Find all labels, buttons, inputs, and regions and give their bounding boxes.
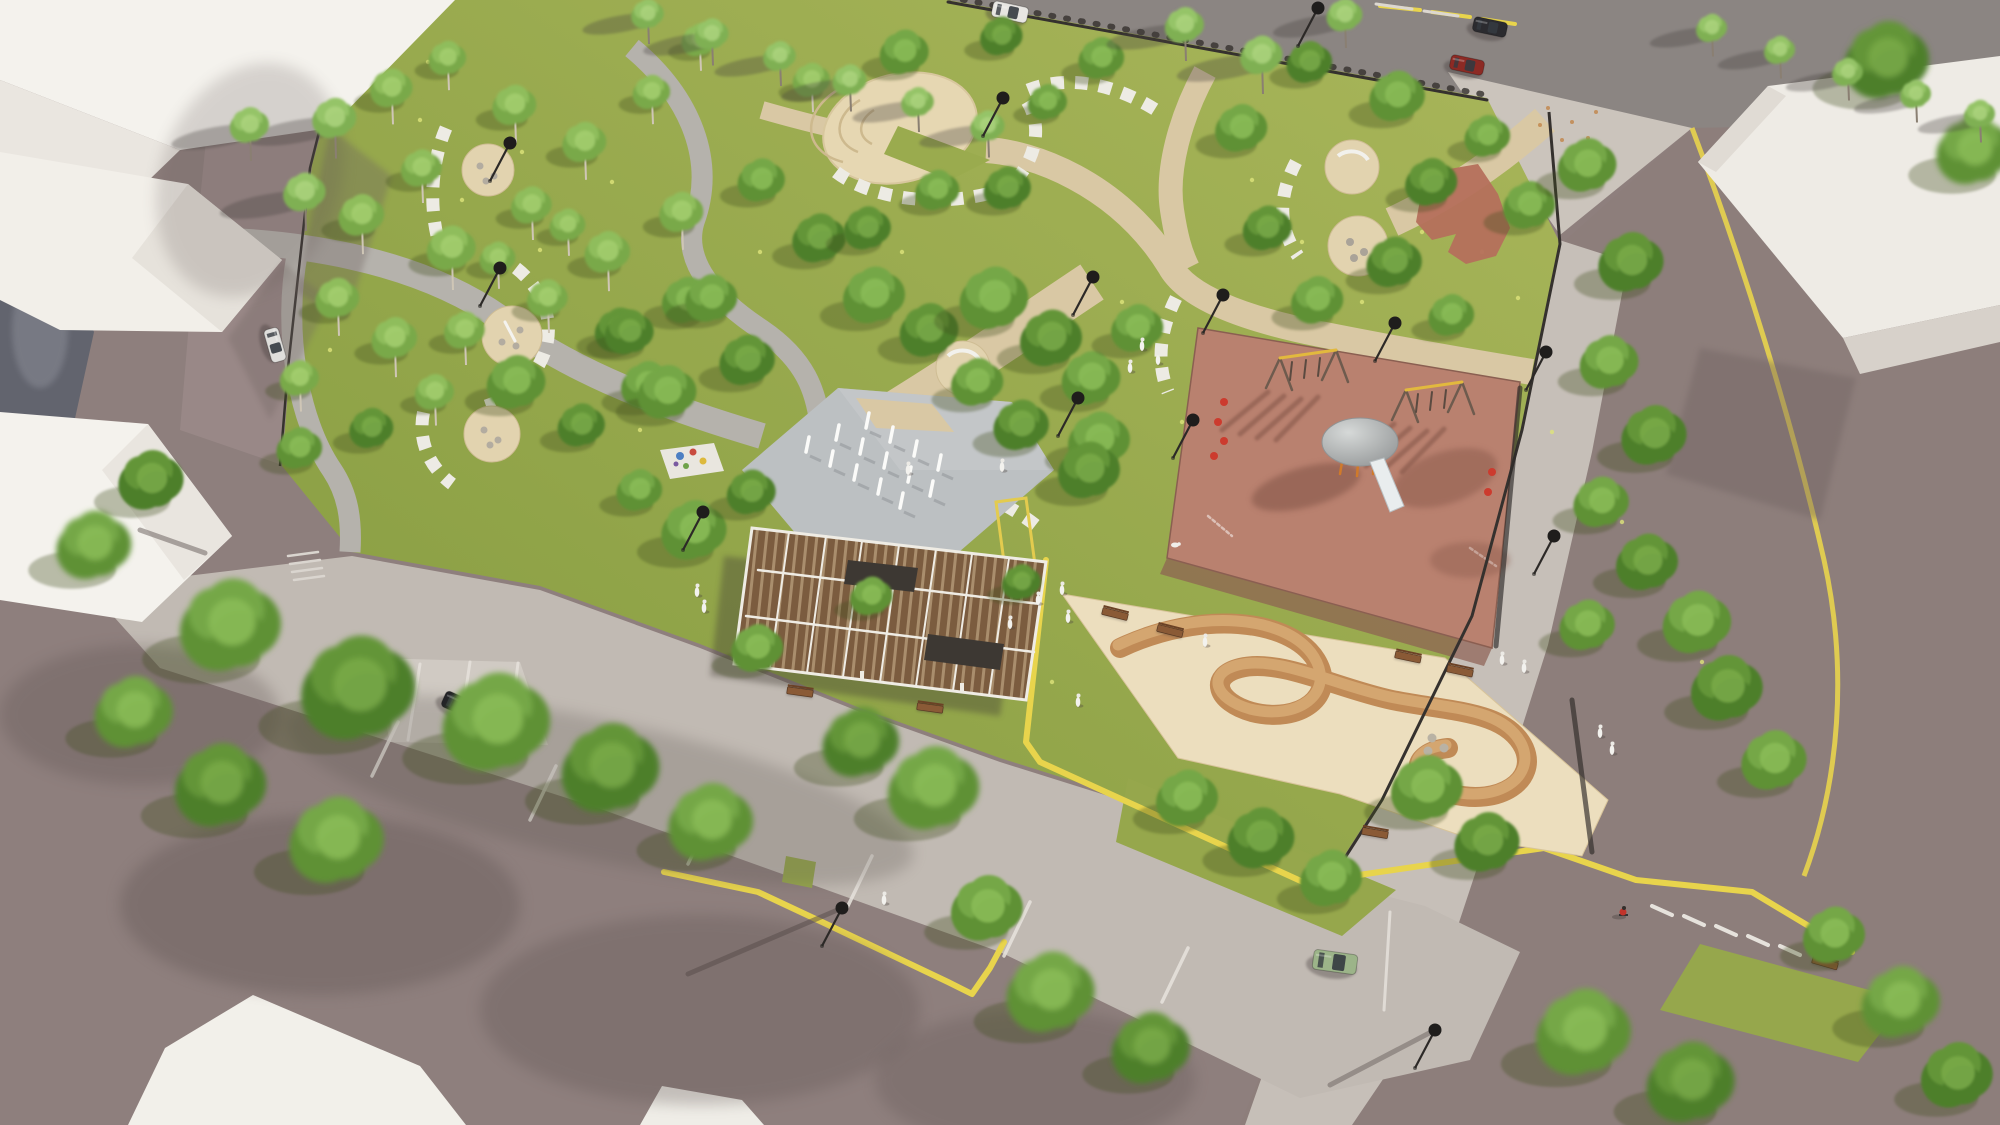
lamp-base	[1532, 572, 1536, 576]
circle-rocks	[1346, 238, 1354, 246]
lawn-flowers	[1620, 520, 1624, 524]
lamp-base	[478, 304, 482, 308]
canopy-highlight	[1958, 130, 1993, 165]
person-head	[1129, 360, 1133, 364]
canopy-highlight	[1126, 314, 1150, 338]
pergola-column	[960, 683, 964, 693]
canopy-highlight	[426, 382, 444, 400]
fallen-leaves	[1594, 110, 1598, 114]
canopy-highlight	[700, 284, 724, 308]
lamp-base	[681, 548, 685, 552]
person-head	[1523, 660, 1527, 664]
render-canvas	[0, 0, 2000, 1125]
lamp-head	[1312, 2, 1325, 15]
lamp-head	[1429, 1024, 1442, 1037]
canopy-highlight	[1575, 610, 1601, 636]
lamp-head	[1389, 317, 1402, 330]
person-head	[1077, 694, 1081, 698]
canopy-highlight	[1385, 81, 1411, 107]
canopy-highlight	[979, 280, 1011, 312]
canopy-highlight	[1705, 20, 1719, 34]
person-head	[907, 462, 911, 466]
canopy-highlight	[1306, 286, 1330, 310]
person-body	[1036, 595, 1041, 605]
fallen-leaves	[1546, 106, 1550, 110]
canopy-highlight	[505, 93, 526, 114]
canopy-highlight	[971, 889, 1004, 922]
canopy-highlight	[382, 77, 402, 97]
sand-rocks	[1424, 747, 1433, 756]
canopy-highlight	[384, 326, 405, 347]
canopy-highlight	[117, 691, 153, 727]
canopy-highlight	[571, 413, 593, 435]
canopy-highlight	[894, 39, 917, 62]
lawn-flowers	[900, 250, 904, 254]
fallen-leaves	[1560, 138, 1564, 142]
circle-furnishings	[481, 427, 488, 434]
canopy-highlight	[1909, 86, 1923, 100]
spring-rider	[1214, 418, 1222, 426]
canopy-highlight	[1473, 825, 1503, 855]
circle-rocks	[1360, 248, 1368, 256]
lamp-head	[1217, 289, 1230, 302]
lamp-base	[1373, 359, 1377, 363]
canopy-highlight	[741, 479, 764, 502]
circle-furnishings	[499, 339, 506, 346]
canopy-highlight	[1617, 245, 1647, 275]
lamp-base	[1413, 1066, 1417, 1070]
canopy-highlight	[746, 634, 770, 658]
person-body	[1000, 462, 1005, 472]
lawn-flowers	[638, 428, 642, 432]
lamp-head	[1072, 392, 1085, 405]
canopy-highlight	[441, 235, 464, 258]
canopy-highlight	[456, 319, 475, 338]
lamp-base	[1296, 44, 1300, 48]
lamp-head	[836, 902, 849, 915]
person-head	[1157, 352, 1161, 356]
person-body	[1076, 697, 1081, 707]
canopy-highlight	[1382, 247, 1408, 273]
person-body	[1140, 341, 1145, 351]
dog-head	[1177, 542, 1181, 546]
rider-head	[1622, 906, 1626, 910]
lamp-head	[494, 262, 507, 275]
park-aerial-render	[0, 0, 2000, 1125]
canopy-highlight	[654, 377, 681, 404]
circle-rocks	[1350, 254, 1358, 262]
canopy-highlight	[672, 200, 693, 221]
person-head	[1061, 582, 1065, 586]
canopy-highlight	[589, 742, 635, 788]
canopy-highlight	[1640, 418, 1670, 448]
canopy-highlight	[857, 216, 879, 238]
canopy-highlight	[910, 93, 925, 108]
car-windshield	[1332, 954, 1346, 972]
lamp-head	[504, 137, 517, 150]
canopy-highlight	[629, 478, 650, 499]
canopy-highlight	[503, 367, 530, 394]
canopy-highlight	[1246, 820, 1277, 851]
canopy-highlight	[560, 216, 577, 233]
lawn-flowers	[1700, 660, 1704, 664]
canopy-highlight	[1634, 546, 1663, 575]
person-body	[1500, 655, 1505, 665]
person-body	[882, 895, 887, 905]
canopy-highlight	[1411, 769, 1444, 802]
canopy-highlight	[1009, 410, 1035, 436]
canopy-highlight	[201, 761, 244, 804]
canopy-highlight	[1589, 487, 1615, 513]
canopy-highlight	[208, 598, 255, 645]
canopy-highlight	[316, 815, 360, 859]
canopy-highlight	[351, 203, 372, 224]
canopy-highlight	[1337, 6, 1354, 23]
lawn-flowers	[1120, 300, 1124, 304]
mat-red-dot	[690, 449, 697, 456]
lamp-head	[1187, 414, 1200, 427]
canopy-highlight	[1441, 303, 1462, 324]
spring-rider	[1220, 398, 1228, 406]
lawn-flowers	[1516, 296, 1520, 300]
canopy-highlight	[523, 194, 542, 213]
canopy-highlight	[992, 25, 1012, 45]
canopy-highlight	[1596, 347, 1623, 374]
canopy-highlight	[291, 368, 309, 386]
person-head	[1611, 742, 1615, 746]
lawn-flowers	[758, 250, 762, 254]
seating-circle	[1325, 140, 1379, 194]
canopy-highlight	[137, 463, 167, 493]
spring-rider	[1210, 452, 1218, 460]
lamp-base	[1071, 313, 1075, 317]
lawn-flowers	[1300, 240, 1304, 244]
mat-blue-dot	[676, 452, 684, 460]
canopy-highlight	[1299, 50, 1320, 71]
spring-rider	[1220, 437, 1228, 445]
canopy-highlight	[333, 658, 386, 711]
circle-furnishings	[513, 343, 520, 350]
person-body	[1128, 363, 1133, 373]
lawn-flowers	[1050, 680, 1054, 684]
circle-furnishings	[477, 163, 484, 170]
canopy-highlight	[328, 286, 349, 307]
canopy-highlight	[619, 319, 642, 342]
canopy-highlight	[473, 694, 523, 744]
canopy-highlight	[1252, 44, 1272, 64]
canopy-highlight	[1420, 168, 1444, 192]
canopy-highlight	[844, 722, 880, 758]
lamp-head	[1087, 271, 1100, 284]
canopy-highlight	[1841, 64, 1855, 78]
person-head	[883, 892, 887, 896]
person-head	[696, 584, 700, 588]
lawn-flowers	[1250, 178, 1254, 182]
person-body	[1203, 637, 1208, 647]
canopy-highlight	[914, 764, 957, 807]
canopy-highlight	[1031, 969, 1072, 1010]
canopy-highlight	[643, 82, 660, 99]
circle-furnishings	[517, 327, 524, 334]
tree-shade-on-street	[480, 915, 920, 1105]
canopy-highlight	[966, 368, 990, 392]
canopy-highlight	[1477, 124, 1498, 145]
lamp-base	[981, 134, 985, 138]
fallen-leaves	[1538, 123, 1542, 127]
sand-rocks	[1428, 734, 1437, 743]
lawn-flowers	[1550, 430, 1554, 434]
canopy-highlight	[1318, 862, 1347, 891]
canopy-highlight	[704, 25, 720, 41]
climber-dome	[1322, 418, 1398, 466]
canopy-highlight	[772, 47, 787, 62]
canopy-highlight	[1076, 454, 1105, 483]
canopy-highlight	[1574, 150, 1601, 177]
canopy-highlight	[325, 106, 346, 127]
canopy-highlight	[1760, 743, 1790, 773]
canopy-highlight	[1773, 42, 1787, 56]
lamp-base	[820, 944, 824, 948]
canopy-highlight	[1868, 38, 1908, 78]
canopy-highlight	[362, 416, 383, 437]
person-body	[1060, 585, 1065, 595]
canopy-highlight	[413, 157, 432, 176]
canopy-highlight	[640, 5, 655, 20]
person-head	[1501, 652, 1505, 656]
canopy-highlight	[241, 115, 259, 133]
person-body	[702, 603, 707, 613]
canopy-highlight	[735, 345, 761, 371]
lamp-head	[1548, 530, 1561, 543]
person-body	[1610, 745, 1615, 755]
canopy-highlight	[1563, 1007, 1607, 1051]
person-body	[1598, 728, 1603, 738]
canopy-highlight	[289, 436, 310, 457]
sand-rocks	[1440, 744, 1449, 753]
person-head	[1037, 592, 1041, 596]
canopy-highlight	[1013, 572, 1031, 590]
mat-purple-dot	[674, 462, 679, 467]
canopy-highlight	[539, 287, 558, 306]
canopy-highlight	[1884, 981, 1920, 1017]
mat-yellow-dot	[700, 458, 707, 465]
canopy-highlight	[751, 168, 773, 190]
lawn-flowers	[460, 198, 464, 202]
person-body	[695, 587, 700, 597]
canopy-highlight	[575, 130, 596, 151]
canopy-highlight	[1039, 92, 1057, 110]
person-body	[906, 465, 911, 475]
lamp-base	[1056, 434, 1060, 438]
person-body	[1008, 619, 1013, 629]
lawn-flowers	[610, 180, 614, 184]
canopy-highlight	[1174, 782, 1203, 811]
mat-green-dot	[683, 463, 689, 469]
canopy-highlight	[1176, 15, 1194, 33]
canopy-highlight	[1671, 1059, 1712, 1100]
canopy-highlight	[1711, 669, 1744, 702]
canopy-highlight	[1518, 191, 1542, 215]
person-body	[1066, 613, 1071, 623]
lawn-flowers	[1180, 420, 1184, 424]
canopy-highlight	[861, 279, 890, 308]
canopy-highlight	[862, 585, 882, 605]
canopy-highlight	[597, 240, 618, 261]
person-head	[703, 600, 707, 604]
canopy-highlight	[997, 176, 1019, 198]
lawn-flowers	[418, 118, 422, 122]
canopy-highlight	[295, 181, 315, 201]
lamp-base	[488, 179, 492, 183]
canopy-highlight	[1078, 363, 1105, 390]
canopy-highlight	[1821, 919, 1850, 948]
lamp-head	[697, 506, 710, 519]
canopy-highlight	[1257, 215, 1280, 238]
canopy-highlight	[78, 525, 113, 560]
person-head	[1204, 634, 1208, 638]
canopy-highlight	[1038, 322, 1067, 351]
person-body	[1156, 355, 1161, 365]
lawn-flowers	[520, 150, 524, 154]
canopy-highlight	[1941, 1056, 1974, 1089]
person-head	[1001, 459, 1005, 463]
lamp-head	[997, 92, 1010, 105]
lawn-flowers	[1360, 300, 1364, 304]
canopy-highlight	[928, 178, 949, 199]
canopy-highlight	[842, 71, 858, 87]
canopy-highlight	[1230, 114, 1254, 138]
person-body	[1522, 663, 1527, 673]
lamp-head	[1540, 346, 1553, 359]
lamp-base	[1201, 331, 1205, 335]
lawn-flowers	[328, 348, 332, 352]
pergola-column	[860, 671, 864, 681]
fallen-leaves	[1570, 120, 1574, 124]
spring-rider	[1484, 488, 1492, 496]
spring-rider	[1488, 468, 1496, 476]
person-head	[1067, 610, 1071, 614]
canopy-highlight	[439, 48, 456, 65]
canopy-highlight	[1973, 106, 1987, 120]
circle-furnishings	[495, 437, 502, 444]
lamp-base	[1171, 456, 1175, 460]
lamp-base	[1524, 388, 1528, 392]
person-head	[1599, 725, 1603, 729]
canopy-highlight	[692, 800, 732, 840]
circle-furnishings	[487, 442, 494, 449]
person-head	[1141, 338, 1145, 342]
canopy-highlight	[1682, 604, 1714, 636]
lawn-flowers	[538, 248, 542, 252]
person-head	[1009, 616, 1013, 620]
canopy-highlight	[1091, 46, 1112, 67]
canopy-highlight	[1134, 1027, 1170, 1063]
